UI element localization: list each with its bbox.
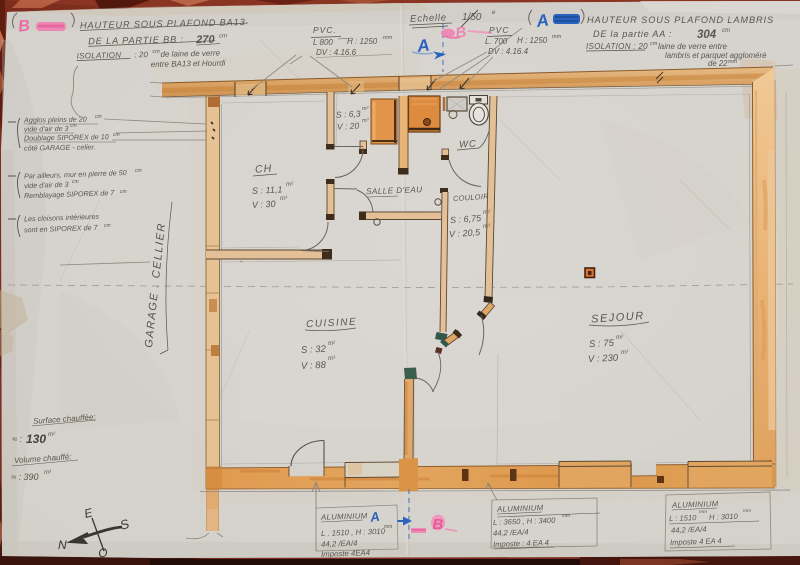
svg-text:V : 230: V : 230 <box>588 353 619 366</box>
svg-text:A: A <box>534 10 550 31</box>
svg-text:Imposte 4EA4: Imposte 4EA4 <box>321 548 371 559</box>
svg-text:Echelle: Echelle <box>410 12 447 24</box>
svg-text:44,2 /EA/4: 44,2 /EA/4 <box>321 539 358 549</box>
svg-text:m³: m³ <box>44 470 52 476</box>
svg-text:S : 11,1: S : 11,1 <box>252 184 283 196</box>
svg-text:S : 32: S : 32 <box>301 344 327 356</box>
svg-text:H : 3010: H : 3010 <box>709 512 739 522</box>
svg-text:DE la partie AA :: DE la partie AA : <box>593 29 672 39</box>
svg-text:S : 75: S : 75 <box>589 338 615 350</box>
svg-text:S : 6,3: S : 6,3 <box>336 108 361 119</box>
svg-text:H : 1250: H : 1250 <box>517 36 548 45</box>
svg-text:mm: mm <box>552 34 562 40</box>
svg-text:m³: m³ <box>362 118 369 124</box>
svg-text:Imposte 4 EA 4: Imposte 4 EA 4 <box>670 536 722 547</box>
svg-text:A: A <box>368 509 380 525</box>
svg-text:H : 1250: H : 1250 <box>347 37 378 46</box>
svg-text:m³: m³ <box>621 350 629 356</box>
svg-text:L 800: L 800 <box>313 38 333 47</box>
svg-text:côté GARAGE - celier.: côté GARAGE - celier. <box>24 142 96 152</box>
svg-text:m²: m² <box>362 106 369 112</box>
svg-text:V : 30: V : 30 <box>252 199 276 210</box>
svg-text:cm: cm <box>219 33 227 39</box>
svg-text:mm: mm <box>728 59 738 65</box>
svg-text:304: 304 <box>697 29 717 41</box>
svg-text:m²: m² <box>48 432 56 438</box>
svg-text:L. 700: L. 700 <box>485 37 508 46</box>
svg-text:cm: cm <box>722 28 730 34</box>
svg-text:HAUTEUR SOUS PLAFOND LAMBRI: HAUTEUR SOUS PLAFOND LAMBRIS <box>587 15 774 25</box>
svg-text:ISOLATION : 20: ISOLATION : 20 <box>586 42 648 51</box>
svg-text:130: 130 <box>26 432 46 446</box>
svg-text:1/50: 1/50 <box>462 12 482 23</box>
svg-text:cm: cm <box>135 168 142 174</box>
svg-text:≈ : 390: ≈ : 390 <box>11 472 38 482</box>
svg-text:entre BA13 et Hourdi: entre BA13 et Hourdi <box>151 58 226 69</box>
svg-text:cm: cm <box>72 179 79 185</box>
svg-text:Doublage SIPOREX de 10: Doublage SIPOREX de 10 <box>24 132 109 142</box>
svg-text:V : 88: V : 88 <box>301 360 327 372</box>
svg-text:m²: m² <box>328 341 336 347</box>
svg-text:cm: cm <box>120 189 127 195</box>
svg-text:cm: cm <box>650 41 658 47</box>
svg-text:≈ :: ≈ : <box>12 434 22 444</box>
svg-text:de 22: de 22 <box>708 59 728 68</box>
svg-text:44,2 /EA/4: 44,2 /EA/4 <box>671 525 707 535</box>
svg-text:cm: cm <box>95 114 102 120</box>
svg-text:de laine de verre: de laine de verre <box>160 49 220 59</box>
svg-text:m³: m³ <box>328 356 336 362</box>
svg-text:B: B <box>17 17 30 35</box>
svg-text:: 20: : 20 <box>134 50 148 59</box>
svg-text:CH: CH <box>255 163 273 176</box>
svg-text:cm: cm <box>152 49 160 55</box>
svg-text:DV : 4.16.6: DV : 4.16.6 <box>316 48 357 57</box>
svg-text:m³: m³ <box>483 224 491 230</box>
svg-text:cm: cm <box>104 223 111 229</box>
svg-text:mm: mm <box>743 509 751 514</box>
svg-text:vide d'air de 3: vide d'air de 3 <box>24 180 69 191</box>
svg-text:44,2 /EA/4: 44,2 /EA/4 <box>493 528 529 538</box>
svg-text:m²: m² <box>286 182 294 188</box>
svg-text:N: N <box>58 538 67 552</box>
svg-text:PVC: PVC <box>489 25 509 35</box>
svg-text:m²: m² <box>616 335 624 341</box>
svg-text:PVC.: PVC. <box>313 25 337 35</box>
svg-text:B: B <box>433 516 444 533</box>
svg-text:m³: m³ <box>280 196 288 202</box>
svg-text:mm: mm <box>383 35 393 41</box>
svg-text:mm: mm <box>384 524 392 530</box>
svg-text:V : 20: V : 20 <box>337 121 360 132</box>
svg-text:m²: m² <box>483 210 491 216</box>
svg-text:cm: cm <box>113 132 120 138</box>
svg-text:DV : 4.16.4: DV : 4.16.4 <box>488 47 529 56</box>
svg-text:mm: mm <box>699 510 707 515</box>
svg-text:laine de verre entre: laine de verre entre <box>658 42 727 51</box>
svg-text:mm: mm <box>562 514 570 519</box>
svg-text:L : 1510: L : 1510 <box>669 513 697 523</box>
